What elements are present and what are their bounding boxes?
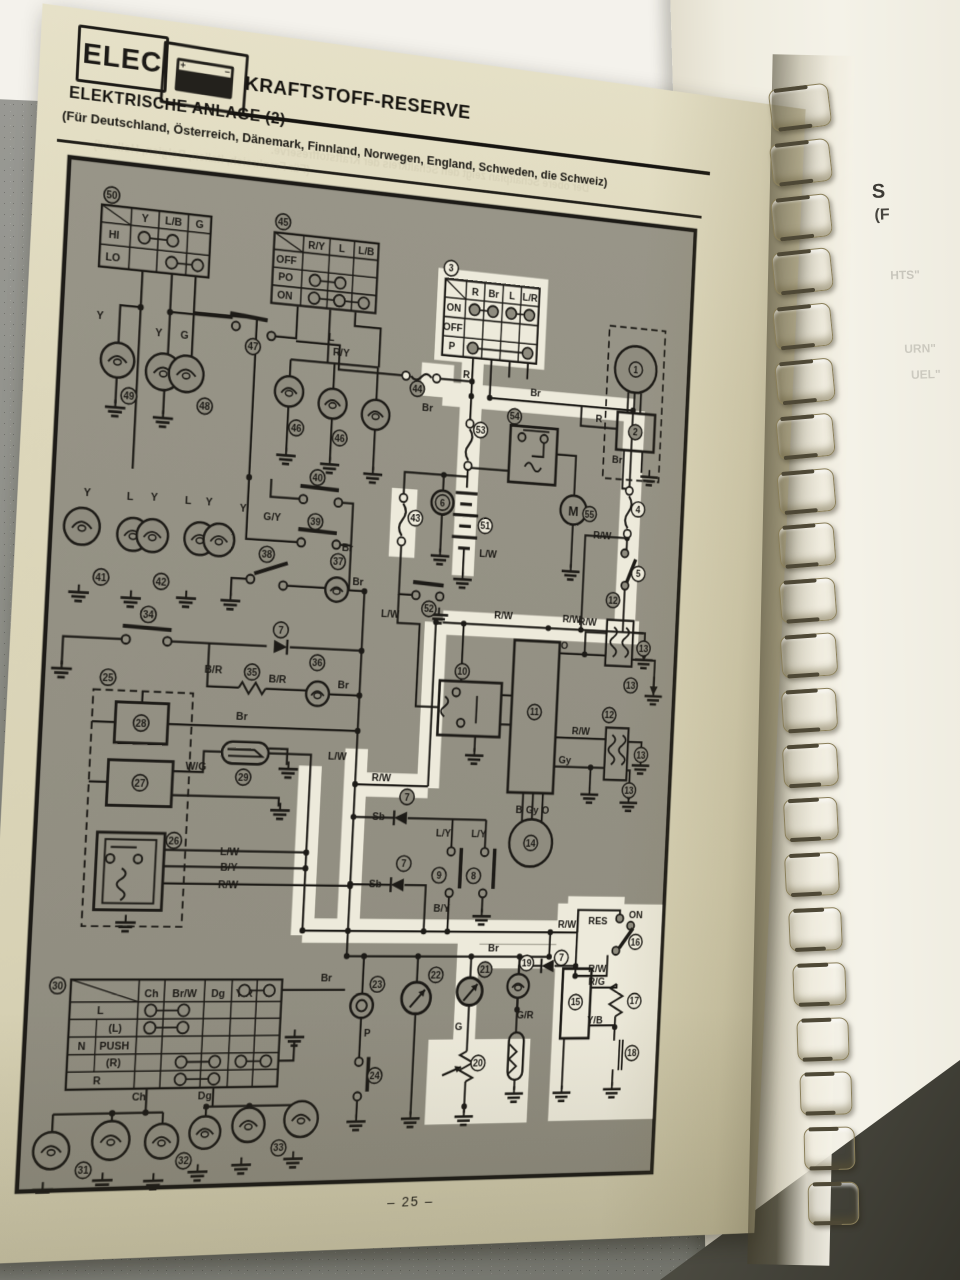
wiring-diagram: MYL/BGHILOR/YLL/BOFFPOONRBrLL/RONOFFPChB… xyxy=(5,153,705,1201)
wire-label: R/W xyxy=(494,609,513,621)
wire-label: G xyxy=(180,329,189,342)
ground-icon xyxy=(456,583,469,584)
ground-icon xyxy=(159,426,166,427)
table-contact xyxy=(308,292,319,305)
table-row-label: HI xyxy=(108,229,119,242)
ground-icon xyxy=(153,417,173,419)
lamp-icon xyxy=(274,375,304,408)
component-number: 14 xyxy=(526,839,536,849)
component-number: 8 xyxy=(471,872,477,882)
ground-icon xyxy=(220,600,240,601)
wire-label: L/W xyxy=(479,548,497,560)
table-header-label: Br/W xyxy=(172,988,197,1000)
table-contact xyxy=(488,305,499,317)
wire-label: Br xyxy=(321,973,333,985)
switch-terminal xyxy=(479,889,487,897)
ground-icon xyxy=(276,455,295,457)
battery-plate xyxy=(460,504,472,505)
ground-icon xyxy=(282,464,289,465)
ring-notch xyxy=(805,1072,835,1077)
binding-ring xyxy=(769,137,833,187)
table-header-label: L/R xyxy=(522,292,538,305)
wire xyxy=(162,1112,163,1124)
component-number: 16 xyxy=(631,938,641,948)
component-number: 20 xyxy=(473,1059,484,1070)
table-header-label: R xyxy=(472,287,479,299)
wire-label: Br xyxy=(338,679,350,691)
table-contact xyxy=(145,1004,157,1016)
wire-label: Br xyxy=(352,576,364,588)
ring-notch xyxy=(802,1056,832,1061)
component-number: 5 xyxy=(636,570,641,580)
facing-page-text: URN" xyxy=(904,341,936,356)
component-number: 12 xyxy=(604,711,614,722)
component-number: 50 xyxy=(106,190,118,202)
wire-label: P xyxy=(364,1028,372,1040)
lamp-icon xyxy=(325,577,349,603)
wire-label: R/W xyxy=(572,726,591,738)
ring-notch xyxy=(808,1127,838,1132)
ground-icon xyxy=(279,769,298,770)
table-n-label: N xyxy=(77,1041,85,1053)
facing-page-text: UEL" xyxy=(911,367,941,382)
table-header-label: L xyxy=(339,243,346,255)
table-header-label: Y xyxy=(141,213,149,226)
ground-icon xyxy=(223,605,237,606)
wire-label: R/W xyxy=(593,530,612,542)
motor-label: M xyxy=(568,504,579,520)
component-number: 7 xyxy=(278,626,284,637)
fuse-terminal xyxy=(397,537,405,546)
lamp-icon xyxy=(63,507,101,546)
table-contact xyxy=(260,1055,272,1067)
wire xyxy=(640,393,641,414)
binding-ring xyxy=(777,522,837,569)
component-number: 7 xyxy=(401,859,407,870)
wire xyxy=(417,956,418,982)
wire-label: R/W xyxy=(371,772,391,784)
component-number: 25 xyxy=(102,673,114,684)
fuse-terminal xyxy=(626,487,634,496)
switch-terminal xyxy=(232,321,241,330)
component-number: 51 xyxy=(480,521,491,532)
switch-terminal xyxy=(297,538,305,547)
binding-ring xyxy=(772,302,834,351)
wire-label: B/Y xyxy=(433,904,450,916)
ring-notch xyxy=(813,1221,842,1226)
switch-terminal xyxy=(436,592,444,601)
diode-bar xyxy=(394,810,395,825)
switch-terminal xyxy=(106,854,115,863)
component-number: 48 xyxy=(199,401,210,413)
component-number: 22 xyxy=(431,971,442,981)
table-contact xyxy=(358,297,369,310)
wire xyxy=(213,1087,214,1106)
component-number: 42 xyxy=(155,577,167,588)
battery-plate xyxy=(459,526,471,527)
component-number: 9 xyxy=(436,871,442,882)
ground-icon xyxy=(632,765,649,766)
ground-icon xyxy=(645,696,662,697)
wire xyxy=(549,932,550,957)
ground-icon xyxy=(320,464,339,465)
switch-lever xyxy=(459,848,461,888)
wire-label: ON xyxy=(629,910,643,921)
wire-label: Y xyxy=(96,310,104,323)
component-number: 30 xyxy=(52,981,64,992)
table-row-label: PO xyxy=(278,272,294,285)
component-number: 15 xyxy=(570,998,580,1008)
table-row-label: LO xyxy=(105,251,121,264)
switch-terminal xyxy=(163,637,172,646)
wire-label: R/W xyxy=(218,879,239,891)
wire-label: Dg xyxy=(198,1090,213,1102)
component-number: 36 xyxy=(312,658,323,669)
table-contact xyxy=(175,1056,187,1068)
wire-label: B xyxy=(515,804,522,815)
component-number: 39 xyxy=(310,517,321,528)
switch-terminal xyxy=(621,581,629,589)
wire-label: O xyxy=(561,640,569,652)
component-number: 13 xyxy=(639,644,649,655)
component-number: 28 xyxy=(135,719,147,730)
component-number: 18 xyxy=(627,1049,637,1059)
wire-label: Sb xyxy=(372,811,385,823)
table-header-label: L xyxy=(509,291,515,303)
component-number: 13 xyxy=(636,751,646,761)
table-row-label: ON xyxy=(446,302,461,315)
table-contact xyxy=(166,256,178,269)
wire-label: L/Y xyxy=(471,829,487,841)
wire xyxy=(527,363,528,379)
ground-icon xyxy=(432,619,445,620)
table-contact xyxy=(335,277,346,290)
ground-icon xyxy=(323,468,336,469)
component-number: 7 xyxy=(404,793,410,804)
component-number: 13 xyxy=(624,786,634,796)
wire-label: B/Y xyxy=(220,862,238,874)
wire-label: B/R xyxy=(268,674,286,686)
table-header-label: L/B xyxy=(358,245,375,258)
wire-label: L xyxy=(328,332,335,344)
table-contact xyxy=(524,309,535,321)
battery-plate xyxy=(456,492,478,494)
binding-ring xyxy=(784,852,840,898)
diode-bar xyxy=(541,959,542,974)
switch-lever xyxy=(493,849,495,889)
ground-icon xyxy=(71,596,85,597)
table-contact xyxy=(467,342,478,354)
ring-notch xyxy=(793,908,824,913)
wire-label: R/G xyxy=(588,977,605,988)
ground-icon xyxy=(187,1172,207,1173)
lamp-icon xyxy=(306,681,330,706)
wire xyxy=(142,691,143,703)
table-contact xyxy=(167,234,179,247)
table-header-label: R/Y xyxy=(308,239,326,252)
lamp-icon xyxy=(318,387,347,419)
binding-ring xyxy=(776,467,836,515)
binding-ring xyxy=(775,412,836,460)
ground-icon xyxy=(143,1181,163,1182)
wire-label: Gy xyxy=(526,804,540,816)
elec-logo-text: ELEC xyxy=(82,37,163,81)
table-contact xyxy=(192,259,204,272)
component-number: 41 xyxy=(95,572,107,584)
binding-ring xyxy=(774,357,836,405)
component-number: 35 xyxy=(246,668,257,679)
lamp-icon xyxy=(283,1101,318,1138)
lamp-icon xyxy=(361,399,390,431)
ground-icon xyxy=(108,411,122,412)
table-row-label: PUSH xyxy=(99,1040,129,1052)
table-header-label: Br xyxy=(488,288,500,300)
component-number: 6 xyxy=(440,498,446,509)
table-contact xyxy=(138,231,150,244)
component-number: 38 xyxy=(261,550,272,561)
switch-terminal xyxy=(627,922,635,930)
ground-icon xyxy=(638,664,650,665)
ground-icon xyxy=(32,1190,53,1191)
ground-icon xyxy=(363,474,382,475)
component-number: 31 xyxy=(77,1166,89,1177)
ground-icon xyxy=(92,1180,113,1181)
switch-terminal xyxy=(616,914,624,922)
wire-label: Y xyxy=(155,327,163,340)
component-number: 52 xyxy=(424,604,435,615)
gauge-icon xyxy=(456,978,482,1006)
switch-terminal xyxy=(518,433,526,442)
wire-label: O xyxy=(541,805,549,816)
ground-icon xyxy=(283,1159,302,1160)
elec-logo-box: ELEC xyxy=(75,24,169,93)
table-contact xyxy=(239,985,251,997)
wire xyxy=(89,781,108,782)
facing-page-text: S xyxy=(872,181,886,204)
component-number: 32 xyxy=(178,1156,189,1167)
wire-label: R xyxy=(463,369,471,381)
wire xyxy=(290,360,291,377)
switch-terminal xyxy=(445,889,453,897)
table-row-label: R xyxy=(93,1075,101,1087)
switch-terminal xyxy=(447,847,455,855)
binding-ring xyxy=(778,577,837,624)
component-number: 43 xyxy=(410,514,421,525)
ring-notch xyxy=(784,579,817,585)
manual-page: ELEC + − KRAFTSTOFF-RESERVE ELEKTRISCHE … xyxy=(0,3,806,1264)
switch-terminal xyxy=(612,947,620,955)
ground-icon xyxy=(326,473,333,474)
photo-of-manual-page: S(FHTS"URN"UEL" ELEC + − KRAFTSTOFF-RESE… xyxy=(0,0,960,1280)
component-number: 17 xyxy=(629,997,639,1007)
wire-label: R/W xyxy=(578,617,597,629)
table-header-label: Ch xyxy=(144,988,159,1000)
switch-terminal xyxy=(457,719,465,728)
component-number: 1 xyxy=(633,365,638,376)
wire-label: L/Y xyxy=(436,828,452,840)
ground-icon xyxy=(465,755,483,756)
ground-icon xyxy=(231,1165,251,1166)
wiring-diagram-svg: MYL/BGHILOR/YLL/BOFFPOONRBrLL/RONOFFPChB… xyxy=(5,153,705,1195)
binding-ring xyxy=(781,687,839,733)
table-row-label: (R) xyxy=(106,1058,122,1070)
component-number: 19 xyxy=(522,959,532,969)
table-row-label: ON xyxy=(277,289,293,302)
wire-label: Y xyxy=(83,487,91,499)
component-number: 37 xyxy=(333,557,344,568)
table-contact xyxy=(178,1004,190,1016)
wire-label: Br xyxy=(488,943,500,954)
wire-label: R/W xyxy=(558,919,577,930)
fuse-terminal xyxy=(399,493,407,502)
switch-terminal xyxy=(334,498,342,507)
wire xyxy=(333,364,334,389)
table-row-label: OFF xyxy=(443,321,463,334)
diode-bar xyxy=(390,877,391,892)
ground-icon xyxy=(580,794,598,795)
wire-label: Ch xyxy=(132,1091,147,1103)
ring-notch xyxy=(786,688,818,694)
lamp-icon xyxy=(136,518,169,553)
wire-label: G/R xyxy=(516,1010,533,1021)
switch-terminal xyxy=(355,1058,363,1067)
ground-icon xyxy=(279,459,292,460)
wire-label: L/W xyxy=(220,846,240,858)
wire-label: L xyxy=(127,491,134,503)
ground-icon xyxy=(433,560,446,561)
table-contact xyxy=(209,1056,221,1068)
switch-terminal xyxy=(353,1092,361,1101)
wire xyxy=(115,378,116,404)
wire xyxy=(463,548,464,576)
wire-label: L/W xyxy=(381,609,400,621)
wire xyxy=(92,721,115,722)
table-contact xyxy=(235,1055,247,1067)
table-contact xyxy=(177,1022,189,1034)
lamp-icon xyxy=(144,1123,179,1158)
table-contact xyxy=(208,1073,220,1085)
fuse-terminal xyxy=(402,371,410,380)
battery-icon: + − xyxy=(175,57,235,99)
component-number: 4 xyxy=(635,505,640,515)
component-number: 33 xyxy=(273,1144,284,1155)
switch-terminal xyxy=(279,581,287,590)
component-number: 40 xyxy=(312,473,323,484)
ring-notch xyxy=(782,524,815,531)
table-contact xyxy=(309,274,320,287)
wire-label: Y/B xyxy=(587,1015,603,1026)
switch-terminal xyxy=(332,540,340,549)
battery-minus-icon: − xyxy=(224,67,230,78)
diode-bar xyxy=(287,640,288,655)
component-circle xyxy=(350,994,374,1018)
component-number: 29 xyxy=(238,773,249,784)
lamp-icon xyxy=(189,1116,221,1149)
ground-icon xyxy=(54,672,68,673)
wire-label: L xyxy=(185,495,192,507)
page-number: – 25 – xyxy=(387,1193,434,1211)
wire-label: Br xyxy=(612,454,623,466)
wire-label: R xyxy=(595,413,602,425)
component-number: 24 xyxy=(369,1071,380,1082)
wire-label: W/G xyxy=(185,761,206,773)
component-number: 27 xyxy=(134,778,146,789)
component-number: 2 xyxy=(633,428,638,439)
binding-ring xyxy=(796,1017,850,1062)
wire-label: Sb xyxy=(369,879,382,891)
binding-ring xyxy=(770,192,834,241)
component-number: 21 xyxy=(480,965,491,975)
binding-ring xyxy=(807,1182,859,1226)
ground-icon xyxy=(453,579,471,580)
binding-ring xyxy=(782,742,839,788)
wire-label: G/Y xyxy=(263,511,282,524)
lamp-icon xyxy=(231,1107,265,1142)
wire-label: Y xyxy=(150,492,158,504)
ring-notch xyxy=(789,853,820,859)
wire-label: Gy xyxy=(558,754,572,766)
wire-label: RES xyxy=(588,916,608,927)
wire-label: G xyxy=(455,1022,463,1033)
binding-ring xyxy=(800,1072,853,1116)
switch-terminal xyxy=(481,848,489,856)
ground-icon xyxy=(640,476,657,477)
component-number: 11 xyxy=(530,708,540,719)
ground-icon xyxy=(176,598,196,599)
wire-label: Br xyxy=(342,542,354,554)
wire-label: Br xyxy=(422,402,434,414)
ring-notch xyxy=(785,633,817,639)
wire-label: B/R xyxy=(204,664,222,677)
ground-icon xyxy=(121,597,141,598)
binding-ring xyxy=(768,83,833,133)
fuse-terminal xyxy=(624,529,632,538)
table-contact xyxy=(469,304,480,316)
ring-notch xyxy=(812,1182,841,1187)
wire-label: Br xyxy=(530,388,542,400)
ground-icon xyxy=(156,422,170,423)
component-number: 46 xyxy=(334,433,345,444)
wire-label: Y xyxy=(205,497,213,509)
battery-plate xyxy=(458,548,470,549)
component-number: 53 xyxy=(475,426,486,437)
binding-ring xyxy=(771,247,834,296)
lamp-icon xyxy=(507,974,530,998)
ground-icon xyxy=(643,481,655,482)
table-header-label: Dg xyxy=(211,988,226,1000)
battery-plus-icon: + xyxy=(180,60,186,72)
table-row-label: L xyxy=(97,1006,104,1018)
ring-notch xyxy=(797,962,828,967)
ground-icon xyxy=(366,478,379,479)
table-contact xyxy=(506,307,517,319)
wire xyxy=(641,452,642,473)
switch-terminal xyxy=(299,495,307,504)
ground-icon xyxy=(68,592,89,593)
wire xyxy=(627,392,628,413)
lamp-icon xyxy=(203,523,235,557)
component-number: 3 xyxy=(449,264,455,275)
wire xyxy=(470,957,471,978)
ground-icon xyxy=(564,575,576,576)
ring-notch xyxy=(801,1017,831,1022)
table-contact xyxy=(144,1022,156,1034)
table-row-label: (L) xyxy=(108,1023,123,1035)
wire-label: R/Y xyxy=(333,346,351,359)
binding-ring xyxy=(783,797,839,843)
switch-terminal xyxy=(134,855,143,864)
ground-icon xyxy=(111,416,118,417)
